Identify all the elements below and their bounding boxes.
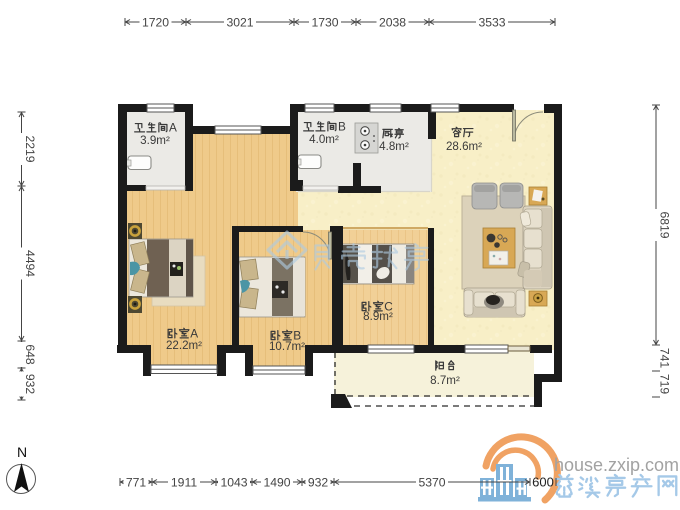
svg-text:600: 600 bbox=[532, 475, 554, 490]
svg-text:3533: 3533 bbox=[478, 15, 505, 29]
svg-text:10.7m²: 10.7m² bbox=[269, 340, 305, 353]
svg-text:1490: 1490 bbox=[263, 475, 290, 489]
svg-text:8.9m²: 8.9m² bbox=[363, 310, 393, 323]
svg-text:4494: 4494 bbox=[23, 250, 37, 277]
svg-text:771: 771 bbox=[126, 475, 147, 489]
svg-text:932: 932 bbox=[308, 475, 329, 489]
svg-text:741: 741 bbox=[657, 348, 671, 369]
svg-text:1720: 1720 bbox=[142, 15, 169, 29]
svg-text:2038: 2038 bbox=[379, 15, 406, 29]
svg-text:28.6m²: 28.6m² bbox=[446, 140, 482, 153]
svg-text:932: 932 bbox=[23, 374, 37, 395]
svg-text:2219: 2219 bbox=[23, 135, 37, 162]
svg-text:5370: 5370 bbox=[418, 475, 445, 489]
svg-text:house.zxip.com: house.zxip.com bbox=[554, 455, 679, 475]
svg-text:1911: 1911 bbox=[171, 475, 197, 489]
svg-text:22.2m²: 22.2m² bbox=[166, 339, 202, 352]
svg-text:4.8m²: 4.8m² bbox=[379, 140, 409, 153]
svg-text:N: N bbox=[17, 444, 27, 460]
svg-text:719: 719 bbox=[657, 374, 671, 395]
svg-text:8.7m²: 8.7m² bbox=[430, 374, 460, 387]
svg-text:3021: 3021 bbox=[226, 15, 253, 29]
svg-text:A: A bbox=[169, 121, 177, 135]
svg-text:6819: 6819 bbox=[657, 211, 671, 238]
svg-text:648: 648 bbox=[23, 344, 37, 365]
svg-text:1043: 1043 bbox=[220, 475, 247, 489]
svg-text:B: B bbox=[338, 120, 346, 134]
svg-text:1730: 1730 bbox=[311, 15, 338, 29]
svg-text:4.0m²: 4.0m² bbox=[309, 133, 339, 146]
svg-text:3.9m²: 3.9m² bbox=[140, 134, 170, 147]
